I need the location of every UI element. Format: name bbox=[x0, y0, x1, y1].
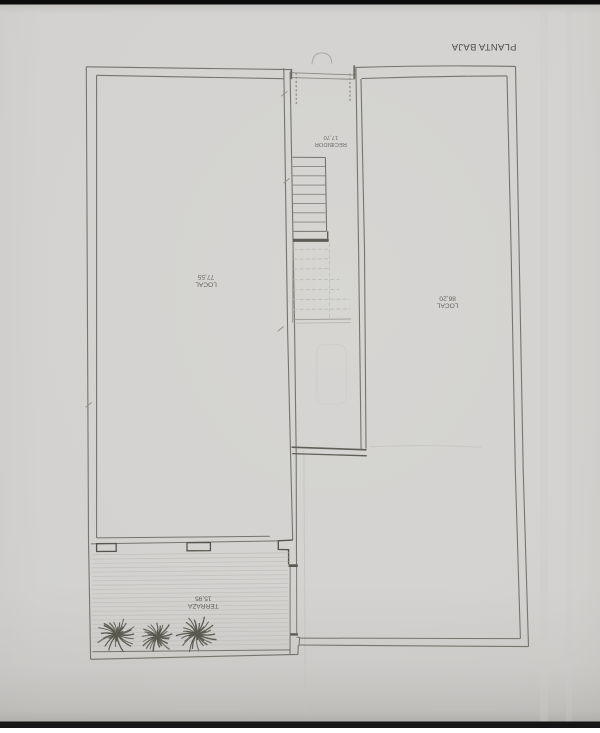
svg-text:17,70: 17,70 bbox=[324, 134, 339, 140]
svg-text:LOCAL: LOCAL bbox=[436, 302, 458, 309]
svg-text:86,20: 86,20 bbox=[439, 294, 456, 301]
svg-text:TERRAZA: TERRAZA bbox=[187, 602, 218, 609]
svg-text:PLANTA BAJA: PLANTA BAJA bbox=[451, 41, 516, 52]
svg-text:RECIBIDOR: RECIBIDOR bbox=[315, 141, 347, 147]
svg-text:LOCAL: LOCAL bbox=[195, 280, 217, 287]
svg-text:77,55: 77,55 bbox=[197, 273, 214, 280]
svg-text:15,95: 15,95 bbox=[195, 595, 212, 602]
